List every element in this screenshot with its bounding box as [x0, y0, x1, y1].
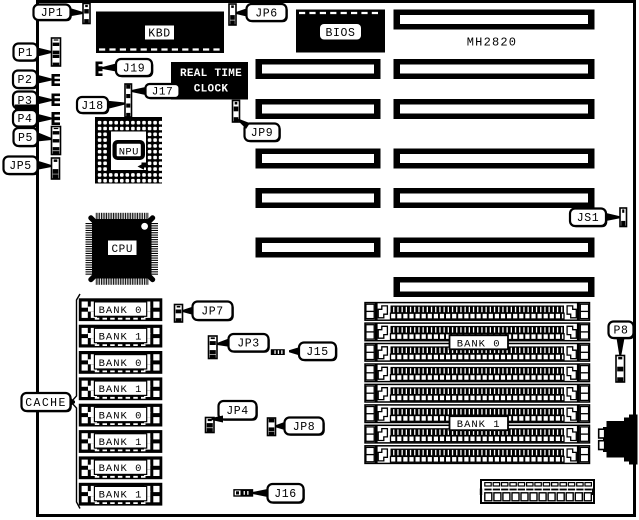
svg-text:JP6: JP6	[255, 7, 278, 20]
svg-text:BANK 0: BANK 0	[99, 463, 143, 475]
svg-text:P1: P1	[18, 47, 33, 60]
svg-text:J15: J15	[306, 346, 329, 359]
svg-text:J17: J17	[152, 87, 174, 99]
svg-text:P2: P2	[17, 74, 32, 87]
svg-text:MH2820: MH2820	[467, 36, 517, 50]
svg-text:BANK 1: BANK 1	[99, 332, 143, 344]
svg-text:J19: J19	[123, 62, 146, 75]
svg-text:KBD: KBD	[148, 28, 171, 41]
svg-text:BANK 0: BANK 0	[99, 358, 143, 370]
svg-text:BANK 1: BANK 1	[99, 490, 143, 502]
svg-text:JP4: JP4	[226, 405, 249, 418]
svg-text:JS1: JS1	[577, 212, 600, 225]
svg-text:BANK 0: BANK 0	[99, 411, 143, 423]
svg-text:JP5: JP5	[9, 160, 32, 173]
svg-text:BANK 0: BANK 0	[457, 338, 501, 350]
svg-text:J18: J18	[81, 100, 104, 113]
svg-text:JP3: JP3	[237, 338, 260, 351]
svg-text:CACHE: CACHE	[25, 397, 67, 410]
svg-text:P4: P4	[17, 113, 32, 126]
svg-text:BANK 1: BANK 1	[99, 384, 143, 396]
svg-text:BANK 1: BANK 1	[457, 419, 501, 431]
svg-text:CLOCK: CLOCK	[194, 84, 229, 96]
svg-text:JP9: JP9	[251, 127, 274, 140]
svg-text:BANK 0: BANK 0	[99, 305, 143, 317]
svg-text:J16: J16	[274, 488, 297, 501]
svg-text:P5: P5	[18, 132, 33, 145]
svg-text:REAL TIME: REAL TIME	[180, 68, 242, 80]
svg-text:BIOS: BIOS	[325, 27, 355, 40]
svg-text:JP7: JP7	[201, 306, 224, 319]
svg-text:JP8: JP8	[293, 421, 316, 434]
svg-text:P8: P8	[613, 325, 628, 338]
svg-text:NPU: NPU	[119, 146, 139, 158]
svg-text:CPU: CPU	[111, 244, 133, 256]
svg-text:BANK 1: BANK 1	[99, 437, 143, 449]
svg-text:JP1: JP1	[41, 7, 64, 20]
